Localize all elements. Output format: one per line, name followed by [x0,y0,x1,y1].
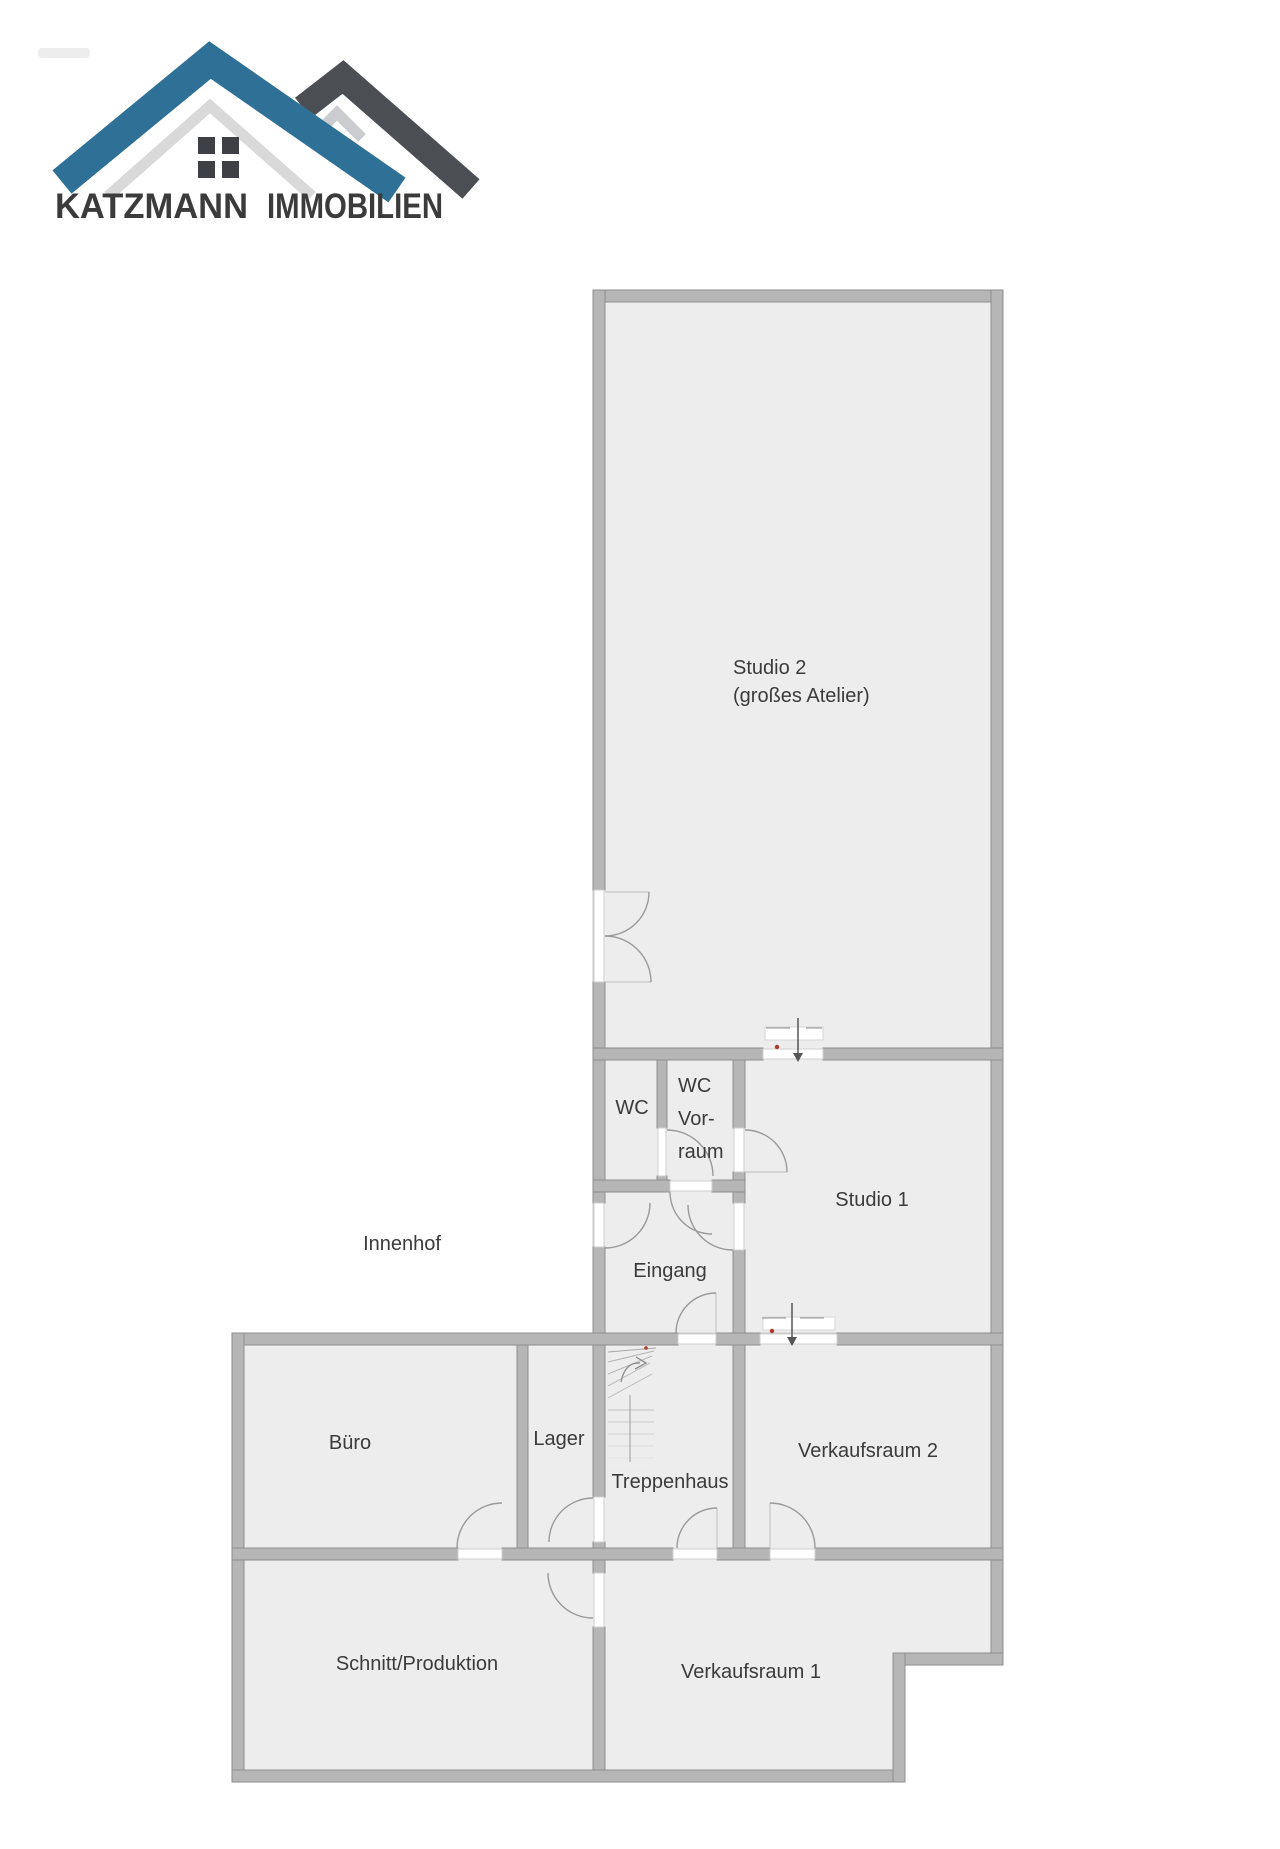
threshold-studio1-lower [734,1203,744,1250]
wall-mid-vertical-c [593,1627,605,1782]
door-marker-dot [775,1045,779,1049]
label-studio2: Studio 2 [733,657,806,679]
wall-wc-vorraum-a [657,1060,667,1128]
threshold-eingang-bottom [678,1334,716,1344]
label-treppenhaus: Treppenhaus [611,1471,728,1493]
wall-band2-d [815,1548,1003,1560]
threshold-wc [658,1128,666,1176]
label-studio1: Studio 1 [835,1189,908,1211]
label-studio2-sub: (großes Atelier) [733,685,870,707]
wall-studio2-top [593,290,1003,302]
threshold-studio1-upper [734,1128,744,1172]
label-wc-vorraum-3: raum [678,1141,724,1163]
wall-notch-vertical [893,1653,905,1782]
wall-band1-a [232,1333,678,1345]
wall-wcrow-top-b [823,1048,1003,1060]
label-eingang: Eingang [633,1260,706,1282]
threshold-schnitt [594,1573,604,1627]
company-logo: KATZMANN IMMOBILIEN [38,48,471,226]
label-lager: Lager [533,1428,584,1450]
wall-right-main [991,290,1003,1665]
threshold-buero [458,1549,502,1559]
sliding-panel-icon [763,1317,835,1330]
label-schnitt-produktion: Schnitt/Produktion [336,1653,498,1675]
brand-suffix: IMMOBILIEN [267,187,443,226]
wall-band2-c [717,1548,770,1560]
wall-vorraum-bottom-b [712,1180,745,1192]
door-marker-dot [770,1329,774,1333]
threshold-sliding-top [763,1049,823,1059]
floorplan-page: KATZMANN IMMOBILIEN [0,0,1280,1849]
label-verkaufsraum2: Verkaufsraum 2 [798,1440,938,1462]
brand-name: KATZMANN [55,187,248,226]
wall-band2-b [502,1548,673,1560]
wall-bottom [232,1770,905,1782]
wall-left-upper-c [593,1247,605,1345]
stair-marker-dot [644,1346,648,1350]
threshold-vorraum [670,1181,712,1191]
logo-window-icon [198,137,239,178]
threshold-verkaufsraum2 [770,1549,815,1559]
label-wc-vorraum-2: Vor- [678,1108,715,1130]
label-verkaufsraum1: Verkaufsraum 1 [681,1661,821,1683]
wall-vorraum-bottom-a [593,1180,670,1192]
wall-studio1-left-c [733,1250,745,1333]
label-buero: Büro [329,1432,371,1454]
logo-smudge [38,48,90,58]
wall-left-upper-b [593,982,605,1203]
label-wc-vorraum-1: WC [678,1075,711,1097]
wall-notch-horizontal [893,1653,1003,1665]
wall-studio1-left-a [733,1060,745,1128]
wall-wcrow-top-a [593,1048,763,1060]
wall-band2-a [232,1548,458,1560]
label-innenhof: Innenhof [363,1233,441,1255]
threshold-treppenhaus [673,1549,717,1559]
threshold-studio2-doubledoor [594,890,604,982]
threshold-lager [594,1497,604,1542]
wall-mid-vertical-a [593,1345,605,1497]
wall-left-upper-a [593,290,605,890]
label-wc: WC [615,1097,648,1119]
wall-band1-b [716,1333,760,1345]
wall-trepp-v2 [733,1345,745,1560]
wall-band1-c [837,1333,1003,1345]
wall-buero-lager [517,1345,528,1560]
threshold-sliding-bottom [760,1334,837,1344]
threshold-eingang-left [594,1203,604,1247]
floor-plan-canvas: KATZMANN IMMOBILIEN [0,0,1280,1849]
sliding-panel-icon [765,1027,823,1040]
